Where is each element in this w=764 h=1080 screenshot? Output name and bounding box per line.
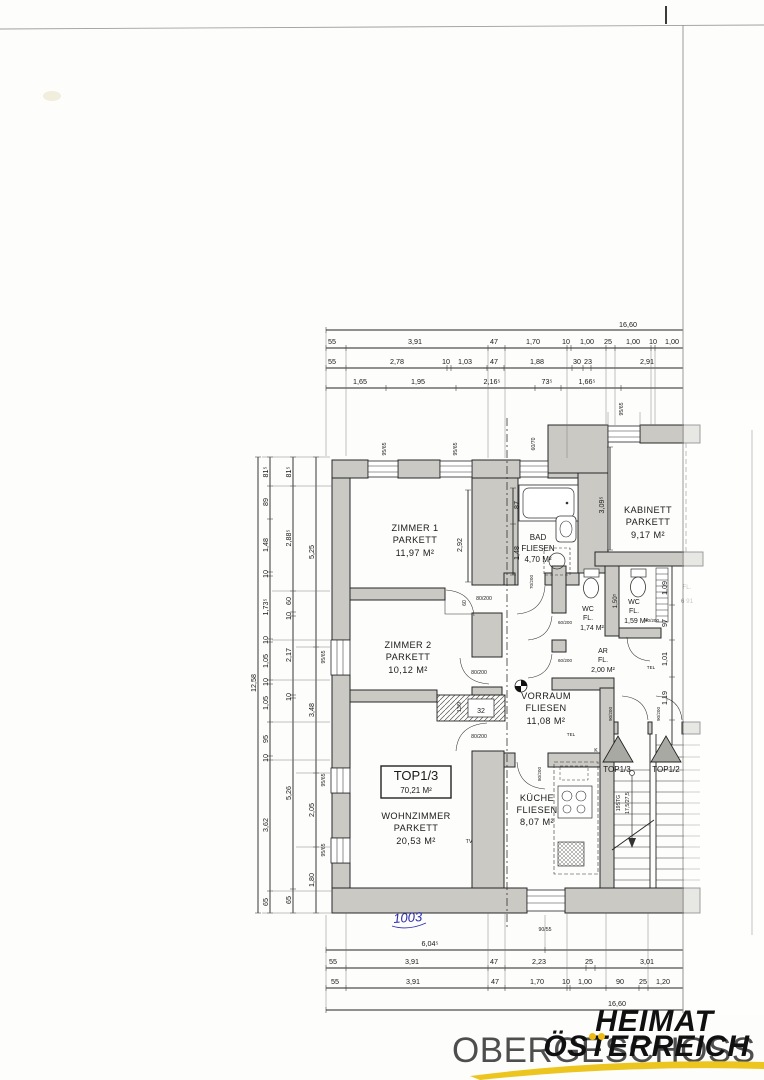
dim-label: 1,20 — [656, 977, 670, 986]
entrance-left-label: TOP1/3 — [603, 765, 631, 774]
chimney-block — [437, 695, 505, 721]
dim-label: 47 — [491, 977, 499, 986]
room-wc1-name: WC — [582, 606, 594, 613]
window-size: 60/70 — [531, 437, 537, 450]
room-kueche-name: KÜCHE — [520, 793, 554, 803]
dim-label: 1,66⁵ — [579, 377, 596, 386]
tv-label: TV — [466, 839, 473, 845]
entrance-markers — [603, 736, 681, 762]
room-ar-finish: FL. — [598, 657, 608, 664]
dim-label: 10 — [284, 693, 293, 701]
dim-label: 3,91 — [408, 337, 422, 346]
dim-label: 60 — [284, 597, 293, 605]
room-bad-area: 4,70 M² — [524, 555, 551, 564]
room-wc2-name: WC — [628, 599, 640, 606]
window-left-2 — [331, 768, 350, 793]
dim-label: 10 — [261, 570, 270, 578]
dim-label: 81⁵ — [284, 466, 293, 477]
door-size: 80/200 — [537, 767, 542, 781]
dim-label: 2,91 — [640, 357, 654, 366]
dim-label: 25 — [639, 977, 647, 986]
door-size: 70/200 — [529, 575, 534, 589]
room-kueche-finish: FLIESEN — [516, 805, 557, 815]
tel-label: TEL — [647, 665, 656, 670]
dim-label: 1,19 — [660, 691, 669, 705]
dim-label: 55 — [331, 977, 339, 986]
dim-label: 1,70 — [526, 337, 540, 346]
dim-label: 47 — [490, 957, 498, 966]
dim-label: 32 — [477, 708, 485, 715]
dim-label: 65 — [261, 898, 270, 906]
dim-label: 10 — [562, 977, 570, 986]
dim-label: 5,25 — [307, 545, 316, 559]
dim-label: 3,48 — [307, 703, 316, 717]
dim-label: 3,09⁵ — [597, 496, 606, 513]
door-size: 80/200 — [471, 670, 487, 676]
dim-label: 30 — [573, 357, 581, 366]
room-kueche-area: 8,07 M² — [520, 817, 554, 827]
room-zimmer1-finish: PARKETT — [393, 535, 438, 545]
dim-label: 1,00 — [578, 977, 592, 986]
entrance-right-label: TOP1/2 — [652, 765, 680, 774]
window-size: 90/55 — [539, 927, 552, 933]
dim-label: 1,50⁵ — [612, 593, 619, 608]
dim-label: 1,05 — [261, 654, 270, 668]
door-size: 80/200 — [476, 596, 492, 602]
dim-label: 1,73⁵ — [261, 598, 270, 615]
dim-label: 2,78 — [390, 357, 404, 366]
dim-label: 25 — [585, 957, 593, 966]
stairs-count: 19STG — [616, 795, 622, 811]
dim-label: 1,65 — [353, 377, 367, 386]
window-size: 95/65 — [321, 773, 327, 786]
dim-label: 1,00 — [626, 337, 640, 346]
window-kabinett — [608, 426, 640, 442]
dim-label: 2,88⁵ — [284, 529, 293, 546]
dim-label: 87 — [512, 501, 521, 509]
door-size: 80/200 — [471, 734, 487, 740]
dim-label: 55 — [329, 957, 337, 966]
washbasin-icon — [556, 516, 576, 542]
kitchen-counter-icon — [554, 762, 598, 874]
room-wohnzimmer-finish: PARKETT — [394, 823, 439, 833]
dim-label: 13/9 — [457, 702, 463, 712]
dim-label: 25 — [604, 337, 612, 346]
dim-label: 1,48 — [261, 538, 270, 552]
window-left-1 — [331, 640, 350, 675]
dim-label: 2,17 — [284, 648, 293, 662]
dim-label: 5,26 — [284, 786, 293, 800]
window-size: 95/65 — [619, 402, 625, 415]
room-bad-name: BAD — [530, 533, 547, 542]
logo-heimat-oesterreich: HEIMAT ÖSTERREICH — [543, 1010, 750, 1059]
dim-label: 1,00 — [580, 337, 594, 346]
room-wc1-area: 1,74 M² — [580, 625, 604, 632]
room-zimmer2-area: 10,12 M² — [388, 665, 427, 675]
dim-label: 16,60 — [619, 320, 637, 329]
dim-label: 47 — [490, 357, 498, 366]
door-size: 60/200 — [558, 620, 572, 625]
dim-label: 1,05 — [261, 696, 270, 710]
scan-page-edge — [683, 25, 764, 1015]
dim-label: 2,92 — [455, 538, 464, 552]
floorplan-drawing: 16,60 55 3,91 47 1,70 10 1,00 25 1,00 10… — [0, 0, 764, 1080]
handwritten-note: 1003 — [393, 909, 424, 926]
toilet-icon-wc1 — [584, 569, 600, 598]
room-vorraum-name: VORRAUM — [521, 691, 571, 701]
room-kabinett-finish: PARKETT — [626, 517, 671, 527]
dim-label: 3,01 — [640, 957, 654, 966]
dim-label: 3,62 — [261, 818, 270, 832]
room-wohnzimmer-name: WOHNZIMMER — [381, 811, 450, 821]
dim-label: 1,95 — [411, 377, 425, 386]
dim-label: 1,48 — [512, 546, 521, 560]
room-bad-finish: FLIESEN — [521, 544, 555, 553]
stairs-rise-run: 17,5/27,5 — [625, 792, 631, 814]
dimension-block-bottom: 6,04⁵ 55 3,91 47 2,23 25 3,01 55 3,91 47… — [329, 939, 670, 1008]
dim-label: 1,09 — [660, 581, 669, 595]
dim-label: 10 — [649, 337, 657, 346]
room-vorraum-area: 11,08 M² — [527, 716, 566, 726]
room-vorraum-finish: FLIESEN — [525, 703, 566, 713]
window-top-2 — [440, 461, 472, 477]
scan-artifacts — [0, 6, 764, 101]
dim-label: 6,04⁵ — [422, 939, 439, 948]
dim-label: 10 — [261, 754, 270, 762]
room-ar-name: AR — [598, 648, 608, 655]
dim-label: 10 — [562, 337, 570, 346]
dim-label: 3,91 — [406, 977, 420, 986]
dim-label: 2,16⁵ — [484, 377, 501, 386]
dimension-block-left: 12,58 81⁵ 89 1,48 10 1,73⁵ 10 1,05 10 1,… — [249, 466, 316, 906]
window-size: 95/65 — [453, 442, 459, 455]
dim-label: 10 — [261, 678, 270, 686]
window-left-3 — [331, 838, 350, 863]
room-zimmer1-area: 11,97 M² — [396, 548, 435, 558]
dim-label: 47 — [490, 337, 498, 346]
dim-label: 1,80 — [307, 873, 316, 887]
logo-umlaut-dots — [589, 1027, 607, 1045]
door-size: 60/200 — [558, 658, 572, 663]
dim-label: 55 — [328, 337, 336, 346]
window-size: 95/65 — [321, 843, 327, 856]
dim-label: 3,91 — [405, 957, 419, 966]
unit-label: TOP1/3 — [394, 768, 439, 783]
tel-label: TEL — [567, 732, 576, 737]
room-zimmer2-name: ZIMMER 2 — [384, 640, 431, 650]
dim-label: 55 — [328, 357, 336, 366]
dim-label: 89 — [261, 498, 270, 506]
dim-label: 90 — [616, 977, 624, 986]
dim-label: 97 — [660, 619, 669, 627]
logo-line2: ÖSTERREICH — [543, 1035, 750, 1060]
room-ar-area: 2,00 M² — [591, 667, 615, 674]
dim-label: 73⁵ — [542, 377, 553, 386]
window-top-1 — [368, 461, 398, 477]
dim-label: 1,03 — [458, 357, 472, 366]
dim-label: 23 — [584, 357, 592, 366]
unit-area: 70,21 M² — [400, 786, 432, 795]
dim-label: 1,70 — [530, 977, 544, 986]
room-zimmer1-name: ZIMMER 1 — [391, 523, 438, 533]
scanned-page: 16,60 55 3,91 47 1,70 10 1,00 25 1,00 10… — [0, 0, 764, 1080]
dim-label: 65 — [284, 896, 293, 904]
room-wc1-finish: FL. — [583, 615, 593, 622]
dim-label: 81⁵ — [261, 466, 270, 477]
dim-label: 10 — [442, 357, 450, 366]
room-wc2-area: 1,59 M² — [624, 618, 648, 625]
dim-label: 1,88 — [530, 357, 544, 366]
dim-label: 2,05 — [307, 803, 316, 817]
window-bad — [520, 461, 548, 477]
dim-label: 1,01 — [660, 652, 669, 666]
door-size: 90/200 — [656, 707, 661, 721]
dim-label: 95 — [261, 735, 270, 743]
window-size: 95/65 — [382, 442, 388, 455]
dim-label: 1,00 — [665, 337, 679, 346]
dim-label: 10 — [284, 612, 293, 620]
room-wc2-finish: FL. — [629, 608, 639, 615]
dim-label: 2,23 — [532, 957, 546, 966]
room-zimmer2-finish: PARKETT — [386, 652, 431, 662]
dim-label: 12,58 — [249, 674, 258, 692]
room-kabinett-area: 9,17 M² — [631, 530, 665, 540]
room-wohnzimmer-area: 20,53 M² — [396, 836, 435, 846]
k-label: K — [594, 748, 598, 754]
toilet-icon-wc2 — [631, 569, 647, 597]
door-size: 60 — [462, 600, 468, 606]
door-size: 90/200 — [608, 707, 613, 721]
window-size: 95/65 — [321, 650, 327, 663]
dim-label: 10 — [261, 636, 270, 644]
room-kabinett-name: KABINETT — [624, 505, 672, 515]
window-bottom — [527, 890, 565, 911]
